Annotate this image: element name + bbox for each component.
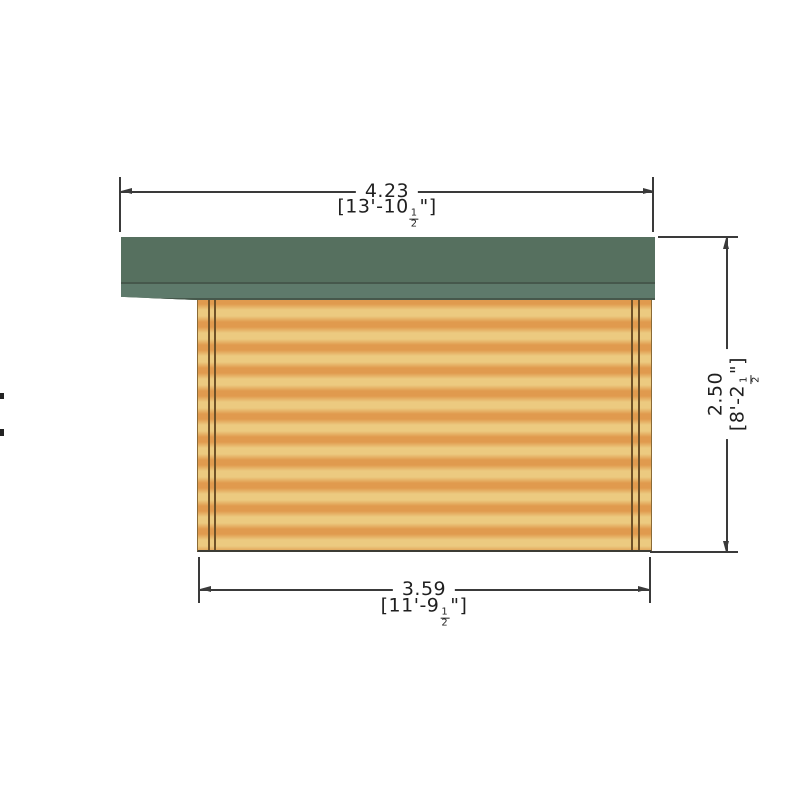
imperial-prefix: [11'-9 [381, 595, 440, 617]
metric-value: 2.50 [704, 372, 726, 416]
fraction: 12 [410, 209, 419, 231]
extension-line [198, 557, 200, 603]
fraction: 12 [440, 608, 449, 630]
imperial-prefix: [8'-2 [727, 385, 749, 431]
extension-line [652, 177, 654, 232]
fraction-denominator: 2 [411, 220, 418, 230]
arrowhead-left-icon [200, 586, 211, 592]
extension-line [119, 177, 121, 232]
imperial-prefix: [13'-10 [337, 196, 408, 218]
extension-line [649, 557, 651, 603]
roof [121, 237, 655, 300]
right-dimension-imperial-label: [8'-212"] [727, 357, 762, 431]
right-dimension-metric-label: 2.50 [704, 357, 726, 431]
fraction-denominator: 2 [751, 376, 761, 383]
imperial-suffix: "] [727, 357, 749, 374]
arrowhead-right-icon [643, 188, 654, 194]
arrowhead-left-icon [121, 188, 132, 194]
fraction: 12 [740, 375, 762, 384]
right-dimension-label: 2.50 [8'-212"] [702, 349, 763, 439]
elevation-drawing: 4.23 [13'-1012"] 2.50 [8'-212"] 3.59 [0, 0, 800, 800]
arrowhead-down-icon [723, 541, 729, 552]
imperial-suffix: "] [420, 196, 437, 218]
corner-post-line [208, 300, 210, 550]
arrowhead-right-icon [638, 586, 649, 592]
imperial-suffix: "] [450, 595, 467, 617]
corner-post-line [631, 300, 633, 550]
clipped-text-fragment [0, 429, 4, 436]
arrowhead-up-icon [723, 238, 729, 249]
fraction-denominator: 2 [441, 619, 448, 629]
wall [197, 300, 652, 552]
corner-post-line [214, 300, 216, 550]
corner-post-line [638, 300, 640, 550]
clipped-text-fragment [0, 393, 4, 399]
top-dimension-imperial-label: [13'-1012"] [337, 196, 436, 231]
bottom-dimension-imperial-label: [11'-912"] [381, 595, 468, 630]
roof-fascia [121, 284, 655, 300]
